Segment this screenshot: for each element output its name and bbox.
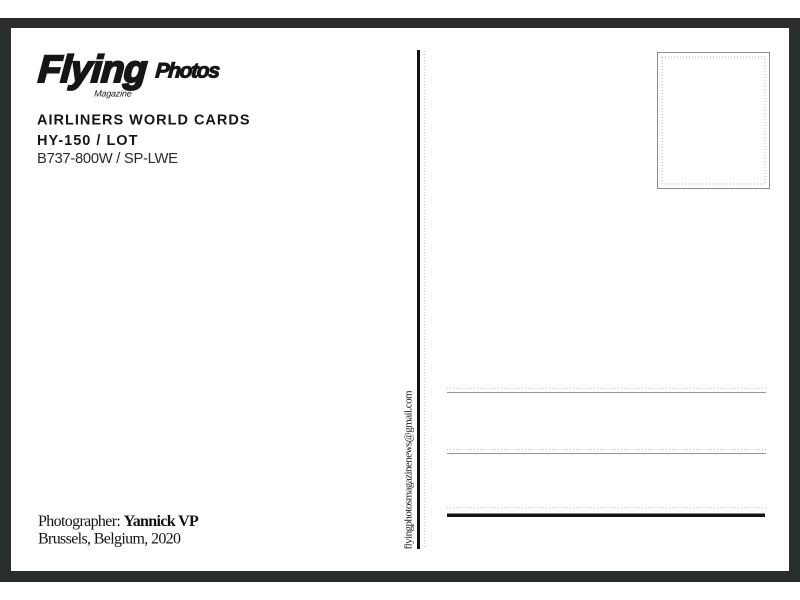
- svg-text:Photos: Photos: [155, 60, 221, 83]
- svg-text:flyingphotosmagazinenews@gmail: flyingphotosmagazinenews@gmail.com: [403, 390, 415, 550]
- svg-text:Magazine: Magazine: [94, 89, 132, 99]
- svg-text:Brussels, Belgium, 2020: Brussels, Belgium, 2020: [38, 531, 181, 548]
- svg-text:AIRLINERS WORLD CARDS: AIRLINERS WORLD CARDS: [37, 113, 251, 129]
- svg-text:HY-150 / LOT: HY-150 / LOT: [37, 133, 138, 149]
- svg-text:B737-800W / SP-LWE: B737-800W / SP-LWE: [37, 151, 178, 167]
- svg-text:Photographer: Yannick VP: Photographer: Yannick VP: [38, 513, 199, 530]
- svg-text:Flying: Flying: [37, 49, 149, 91]
